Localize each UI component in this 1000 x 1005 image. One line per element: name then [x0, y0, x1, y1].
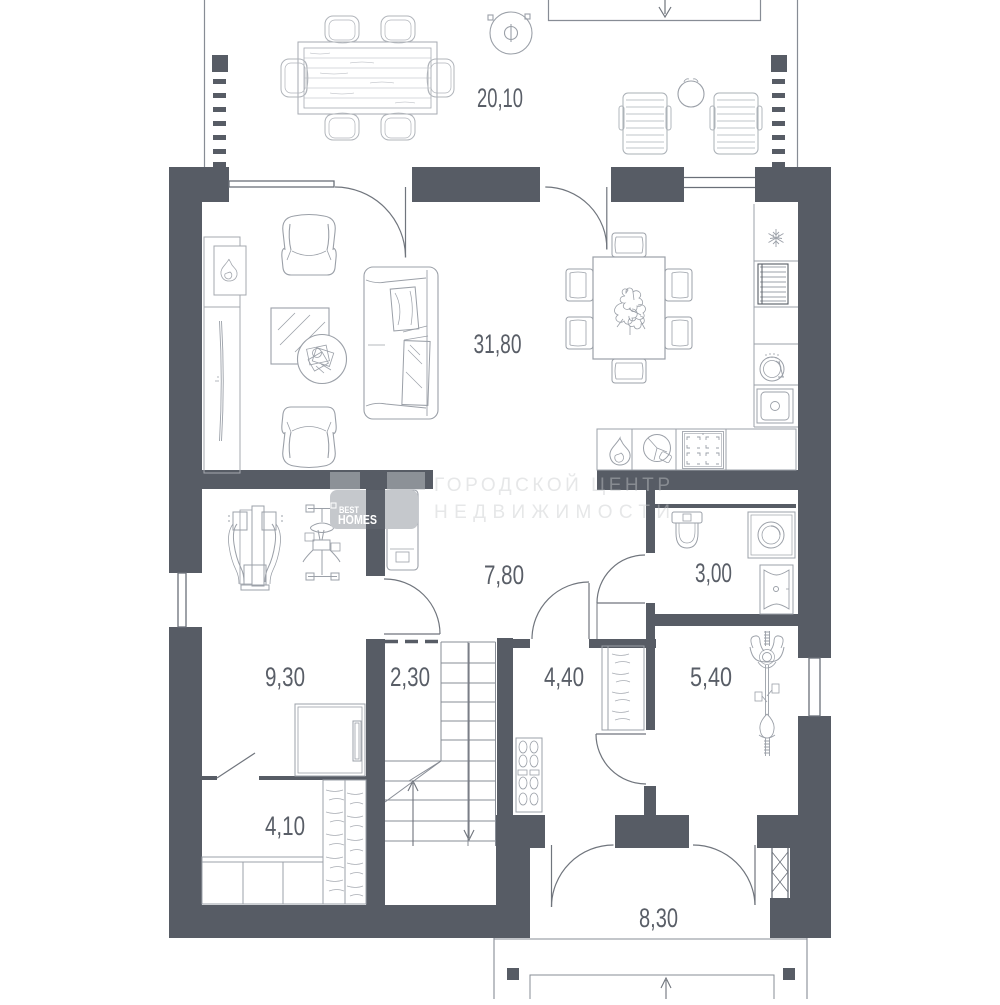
svg-text:8,30: 8,30: [639, 903, 678, 933]
svg-text:3,00: 3,00: [695, 558, 732, 588]
svg-text:HOMES: HOMES: [338, 513, 377, 527]
svg-text:4,10: 4,10: [265, 811, 305, 841]
svg-text:ГОРОДСКОЙ ЦЕНТР: ГОРОДСКОЙ ЦЕНТР: [434, 474, 670, 496]
svg-text:7,80: 7,80: [484, 560, 524, 590]
svg-text:9,30: 9,30: [265, 662, 305, 692]
svg-text:31,80: 31,80: [474, 329, 522, 359]
svg-text:4,40: 4,40: [544, 662, 584, 692]
svg-text:5,40: 5,40: [690, 662, 732, 692]
svg-text:2,30: 2,30: [390, 662, 430, 692]
svg-text:20,10: 20,10: [477, 83, 523, 113]
